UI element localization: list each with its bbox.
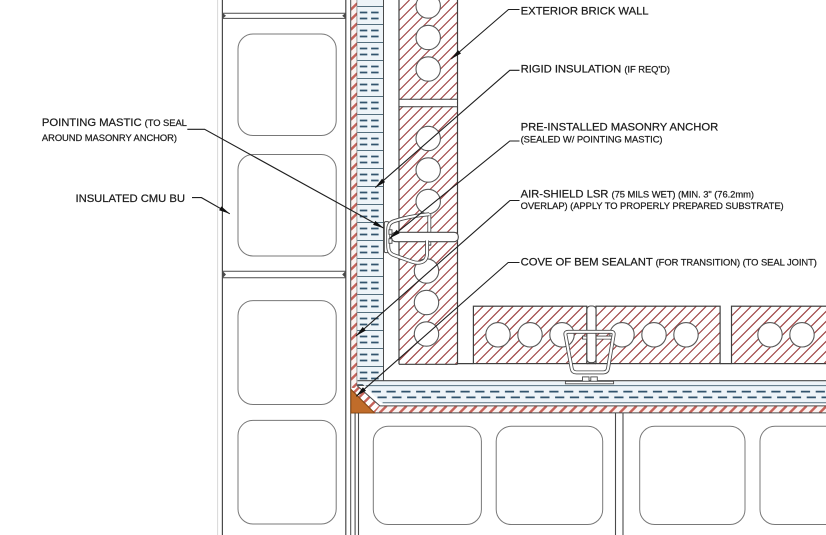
svg-text:AIR-SHIELD LSR (75 MILS WET) (: AIR-SHIELD LSR (75 MILS WET) (MIN. 3" (7… — [521, 188, 754, 200]
svg-text:PRE-INSTALLED MASONRY ANCHOR: PRE-INSTALLED MASONRY ANCHOR — [521, 122, 719, 134]
svg-text:(SEALED W/ POINTING MASTIC): (SEALED W/ POINTING MASTIC) — [521, 134, 663, 145]
svg-text:COVE OF BEM SEALANT (FOR TRANS: COVE OF BEM SEALANT (FOR TRANSITION) (TO… — [521, 256, 817, 268]
svg-text:AROUND MASONRY ANCHOR): AROUND MASONRY ANCHOR) — [42, 132, 177, 143]
svg-text:OVERLAP) (APPLY TO PROPERLY PR: OVERLAP) (APPLY TO PROPERLY PREPARED SUB… — [521, 200, 784, 211]
svg-text:POINTING MASTIC (TO SEAL: POINTING MASTIC (TO SEAL — [42, 117, 187, 129]
svg-text:EXTERIOR BRICK WALL: EXTERIOR BRICK WALL — [521, 6, 649, 18]
svg-text:INSULATED CMU BU: INSULATED CMU BU — [76, 193, 185, 205]
svg-text:RIGID INSULATION (IF REQ'D): RIGID INSULATION (IF REQ'D) — [521, 64, 670, 76]
